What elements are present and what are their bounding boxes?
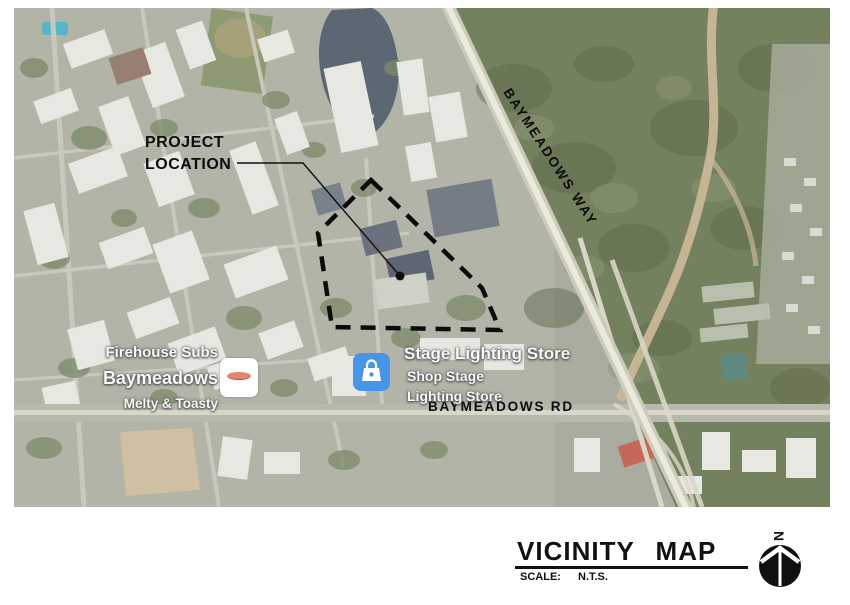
vicinity-map-sheet: BAYMEADOWS WAY PROJECT LOCATION BAYMEADO…	[0, 0, 850, 605]
firehouse-logo-shape	[227, 372, 251, 380]
north-arrow-icon: N	[752, 520, 810, 594]
firehouse-name-line1: Firehouse Subs	[44, 344, 218, 362]
stage-store-name: Stage Lighting Store	[404, 344, 570, 364]
dry-field	[214, 18, 266, 58]
dirt-lot	[120, 428, 200, 496]
firehouse-name-line2: Baymeadows	[44, 367, 218, 389]
project-location-marker	[396, 272, 405, 281]
satellite-imagery: BAYMEADOWS WAY	[14, 8, 830, 507]
project-label-line1: PROJECT	[145, 132, 231, 154]
firehouse-logo-icon	[220, 358, 258, 397]
stage-store-detail1: Shop Stage	[407, 368, 484, 384]
project-location-label: PROJECT LOCATION	[145, 132, 231, 175]
project-label-line2: LOCATION	[145, 154, 231, 176]
scale-value: N.T.S.	[578, 571, 608, 583]
page-title: VICINITY MAP	[517, 536, 716, 567]
poi-firehouse-label: Firehouse Subs Baymeadows Melty & Toasty	[44, 344, 218, 412]
firehouse-tagline: Melty & Toasty	[44, 396, 218, 412]
stage-store-detail2: Lighting Store	[407, 388, 502, 404]
title-underline	[515, 566, 748, 569]
north-letter: N	[771, 531, 787, 541]
shopping-bag-icon	[353, 353, 390, 391]
aerial-map: BAYMEADOWS WAY PROJECT LOCATION BAYMEADO…	[14, 8, 830, 507]
scale-label: SCALE:	[520, 571, 561, 583]
